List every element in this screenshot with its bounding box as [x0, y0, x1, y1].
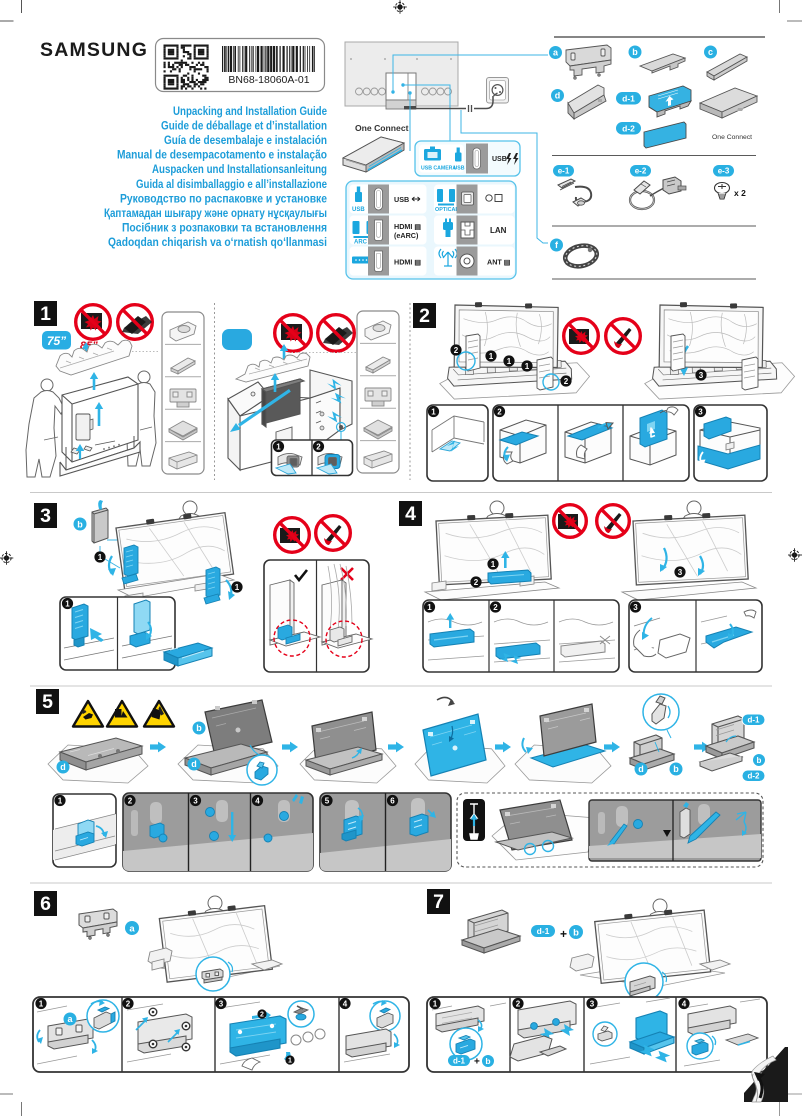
- svg-text:One Connect: One Connect: [355, 123, 409, 133]
- svg-text:OPTICAL: OPTICAL: [435, 207, 459, 213]
- svg-text:x 2: x 2: [734, 188, 746, 198]
- svg-text:3: 3: [678, 568, 683, 577]
- svg-text:2: 2: [419, 305, 430, 327]
- svg-text:1: 1: [525, 362, 530, 371]
- svg-text:4: 4: [255, 796, 260, 805]
- svg-text:d: d: [60, 762, 66, 772]
- svg-text:b: b: [573, 927, 579, 938]
- svg-text:1: 1: [58, 796, 63, 805]
- svg-text:3: 3: [193, 796, 198, 805]
- svg-text:4: 4: [682, 999, 687, 1008]
- svg-text:(eARC): (eARC): [394, 231, 419, 240]
- svg-text:1: 1: [433, 999, 438, 1008]
- svg-text:2: 2: [126, 999, 131, 1008]
- svg-text:5: 5: [325, 796, 330, 805]
- svg-text:ANT ▤: ANT ▤: [487, 258, 511, 267]
- svg-text:b: b: [77, 519, 83, 529]
- svg-text:1: 1: [427, 603, 432, 612]
- svg-text:One Connect: One Connect: [712, 134, 752, 141]
- svg-text:Unpacking and Installation Gui: Unpacking and Installation Guide: [173, 106, 327, 118]
- svg-text:+: +: [474, 1057, 480, 1068]
- svg-text:d-1: d-1: [748, 716, 761, 725]
- svg-text:1: 1: [235, 583, 240, 592]
- svg-text:a: a: [129, 923, 135, 934]
- svg-text:2: 2: [260, 1012, 264, 1019]
- svg-text:Руководство по распаковке и ус: Руководство по распаковке и установке: [120, 193, 327, 205]
- svg-text:Guida al disimballaggio e all’: Guida al disimballaggio e all’installazi…: [136, 179, 327, 191]
- svg-text:4: 4: [343, 999, 348, 1008]
- svg-text:e-3: e-3: [718, 167, 730, 176]
- svg-text:USB: USB: [454, 166, 465, 172]
- svg-text:d: d: [191, 759, 197, 769]
- svg-text:2: 2: [493, 603, 498, 612]
- svg-text:USB: USB: [492, 156, 507, 163]
- svg-text:USB CAMERA: USB CAMERA: [421, 166, 456, 172]
- svg-text:5: 5: [42, 691, 53, 713]
- svg-text:3: 3: [698, 407, 703, 416]
- svg-text:d-2: d-2: [622, 123, 635, 133]
- svg-text:2: 2: [497, 407, 502, 416]
- svg-text:ARC: ARC: [354, 240, 368, 246]
- svg-text:6: 6: [390, 796, 395, 805]
- svg-text:6: 6: [40, 893, 51, 915]
- svg-text:d: d: [555, 91, 561, 101]
- svg-text:2: 2: [454, 346, 459, 355]
- svg-text:75”: 75”: [47, 334, 66, 348]
- svg-text:1: 1: [489, 352, 494, 361]
- svg-text:HDMI ▤: HDMI ▤: [394, 258, 421, 267]
- svg-text:HDMI ▤: HDMI ▤: [394, 222, 421, 231]
- svg-text:1: 1: [276, 442, 281, 451]
- svg-text:Guía de desembalaje e instalac: Guía de desembalaje e instalación: [164, 135, 327, 147]
- svg-text:b: b: [757, 756, 762, 765]
- svg-text:Қаптамадан шығару және орнату: Қаптамадан шығару және орнату нұсқаулығы: [104, 208, 327, 220]
- svg-text:1: 1: [65, 599, 70, 608]
- svg-text:USB: USB: [394, 195, 409, 204]
- svg-text:SAMSUNG: SAMSUNG: [40, 39, 148, 61]
- svg-text:4: 4: [405, 503, 416, 525]
- svg-text:b: b: [196, 723, 202, 733]
- svg-text:BN68-18060A-01: BN68-18060A-01: [228, 74, 309, 86]
- svg-text:Auspacken und Installationsanl: Auspacken und Installationsanleitung: [152, 164, 327, 176]
- svg-text:b: b: [673, 764, 679, 774]
- svg-text:3: 3: [219, 999, 224, 1008]
- svg-text:1: 1: [98, 553, 103, 562]
- svg-text:e-1: e-1: [558, 167, 570, 176]
- svg-text:d-1: d-1: [622, 93, 635, 103]
- svg-text:3: 3: [40, 505, 51, 527]
- svg-text:LAN: LAN: [490, 226, 507, 235]
- svg-text:Manual de desempacotamento e i: Manual de desempacotamento e instalação: [117, 150, 327, 162]
- svg-text:2: 2: [474, 578, 479, 587]
- svg-text:d-1: d-1: [453, 1056, 466, 1065]
- svg-text:2: 2: [516, 999, 521, 1008]
- svg-text:1: 1: [507, 357, 512, 366]
- svg-text:1: 1: [288, 1058, 292, 1065]
- svg-text:d: d: [638, 764, 644, 774]
- svg-text:d-1: d-1: [537, 926, 550, 936]
- svg-text:1: 1: [431, 407, 436, 416]
- svg-text:+: +: [560, 927, 567, 941]
- svg-text:2: 2: [564, 377, 569, 386]
- svg-text:2: 2: [128, 796, 133, 805]
- svg-text:7: 7: [433, 891, 444, 913]
- svg-text:b: b: [485, 1056, 490, 1066]
- svg-text:USB: USB: [352, 207, 365, 213]
- svg-text:d-2: d-2: [748, 772, 761, 781]
- svg-text:3: 3: [699, 371, 704, 380]
- svg-text:Qadoqdan chiqarish va o‘rnatis: Qadoqdan chiqarish va o‘rnatish qo‘llanm…: [108, 237, 327, 249]
- svg-text:Посібник з розпаковки та встан: Посібник з розпаковки та встановлення: [122, 222, 327, 234]
- svg-text:c: c: [708, 47, 713, 57]
- svg-text:b: b: [632, 47, 638, 57]
- svg-text:1: 1: [491, 560, 496, 569]
- svg-text:e-2: e-2: [635, 167, 647, 176]
- svg-text:3: 3: [633, 603, 638, 612]
- svg-text:3: 3: [590, 999, 595, 1008]
- svg-text:1: 1: [40, 303, 51, 325]
- svg-text:1: 1: [39, 999, 44, 1008]
- svg-text:Guide de déballage et d’instal: Guide de déballage et d’installation: [161, 121, 327, 133]
- svg-text:2: 2: [316, 442, 321, 451]
